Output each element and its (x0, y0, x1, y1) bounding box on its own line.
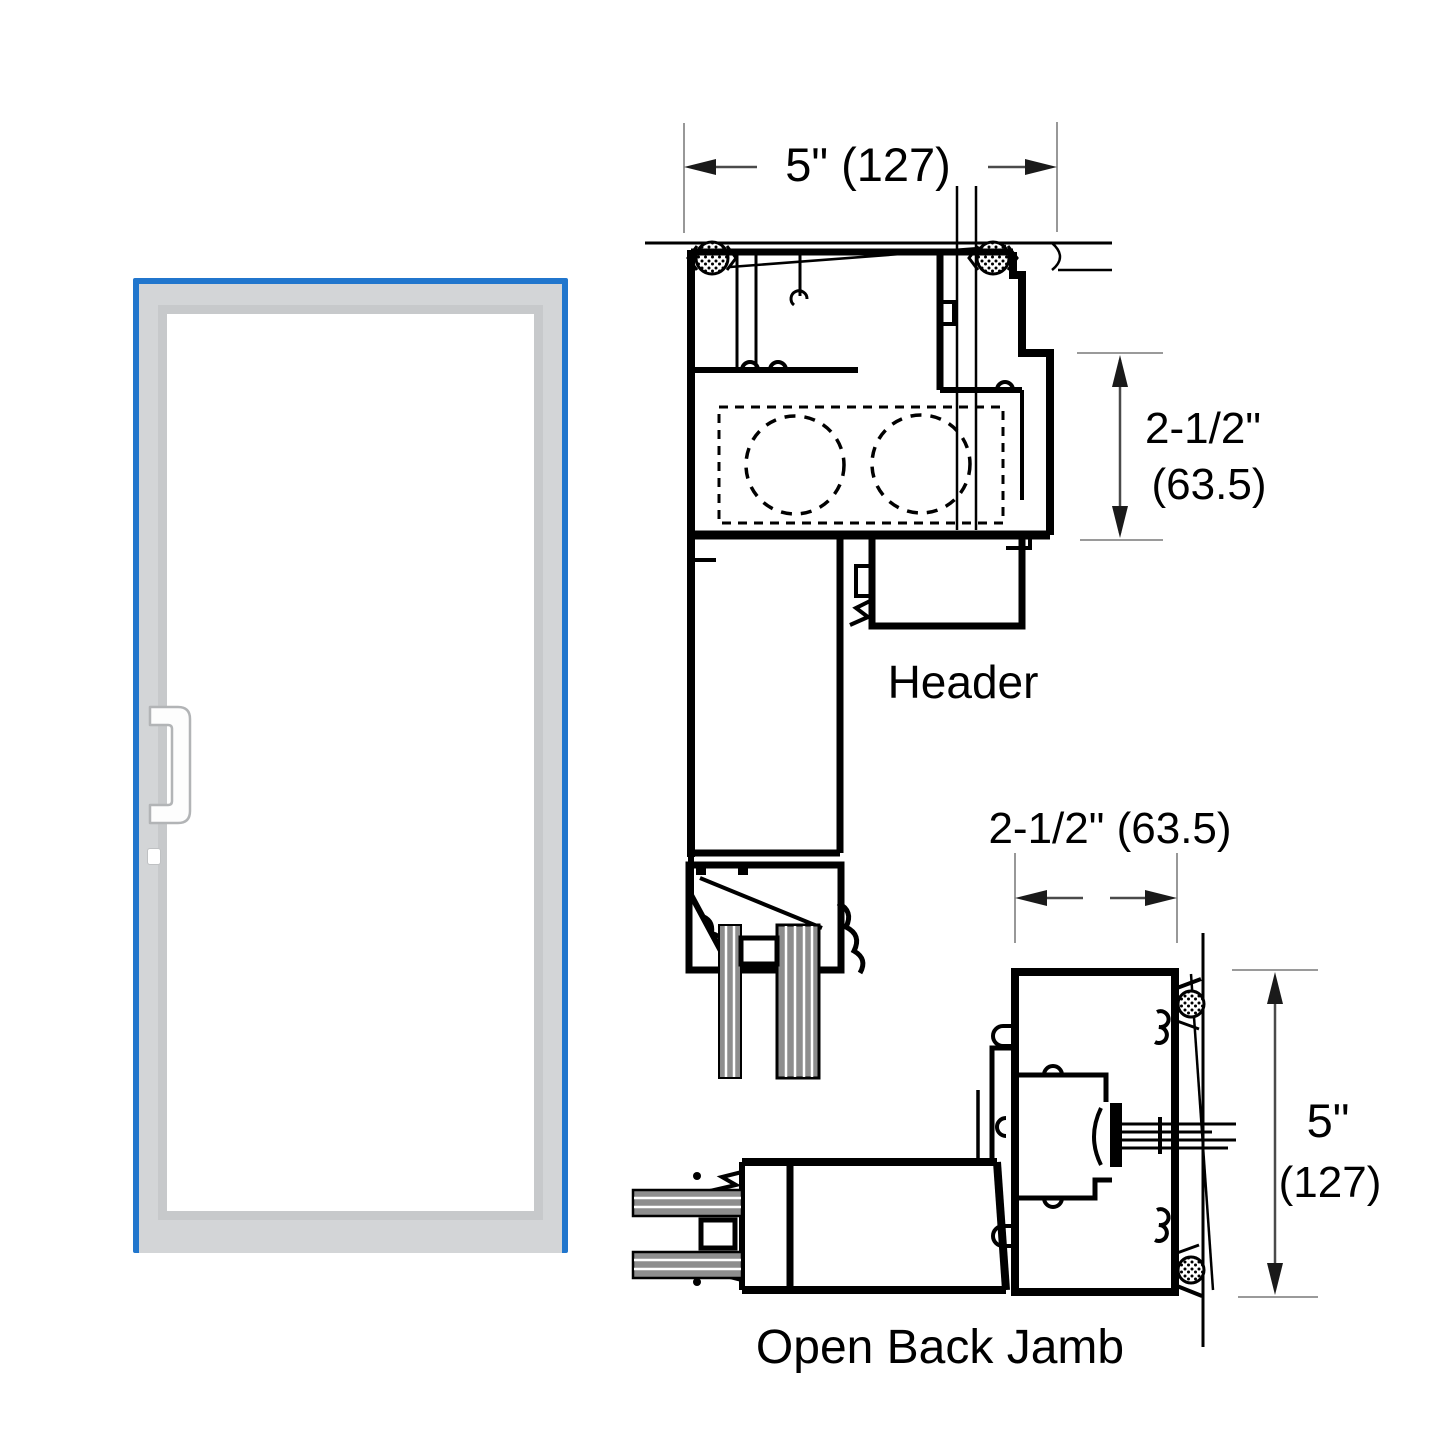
jamb-height-dimension-inches: 5" (1307, 1094, 1350, 1148)
jamb-gasket-bottom (1155, 1209, 1204, 1296)
jamb-height-dimension-mm: (127) (1279, 1158, 1382, 1209)
header-glass-unit (719, 925, 819, 1078)
header-reveal-lines (957, 186, 976, 530)
jamb-width-dimension-text: 2-1/2" (63.5) (988, 804, 1231, 855)
jamb-glass-unit (633, 1190, 742, 1278)
header-depth-dimension-mm: (63.5) (1152, 460, 1267, 511)
jamb-leaf-connector (978, 1048, 1015, 1160)
header-depth-dimension-inches: 2-1/2" (1145, 404, 1261, 455)
door-glass (167, 314, 534, 1211)
header-door-stop (850, 536, 1022, 626)
door-pull-handle (143, 698, 203, 838)
jamb-section-label: Open Back Jamb (756, 1320, 1124, 1375)
jamb-gasket-top (1155, 979, 1204, 1043)
jamb-wall-anchor (1094, 1103, 1236, 1167)
dim-jamb-height (1232, 970, 1318, 1297)
dim-jamb-width (1015, 853, 1177, 943)
header-section-label: Header (888, 655, 1039, 709)
door-elevation (133, 278, 568, 1253)
diagram-page: { "title": "Door header and open back ja… (0, 0, 1445, 1445)
header-screw-chase (719, 407, 1003, 523)
header-section-drawing (645, 122, 1163, 1078)
lock-cylinder (147, 848, 161, 865)
header-gasket-left (688, 242, 736, 274)
section-drawings (580, 100, 1445, 1445)
header-width-dimension-text: 5" (127) (785, 138, 951, 192)
